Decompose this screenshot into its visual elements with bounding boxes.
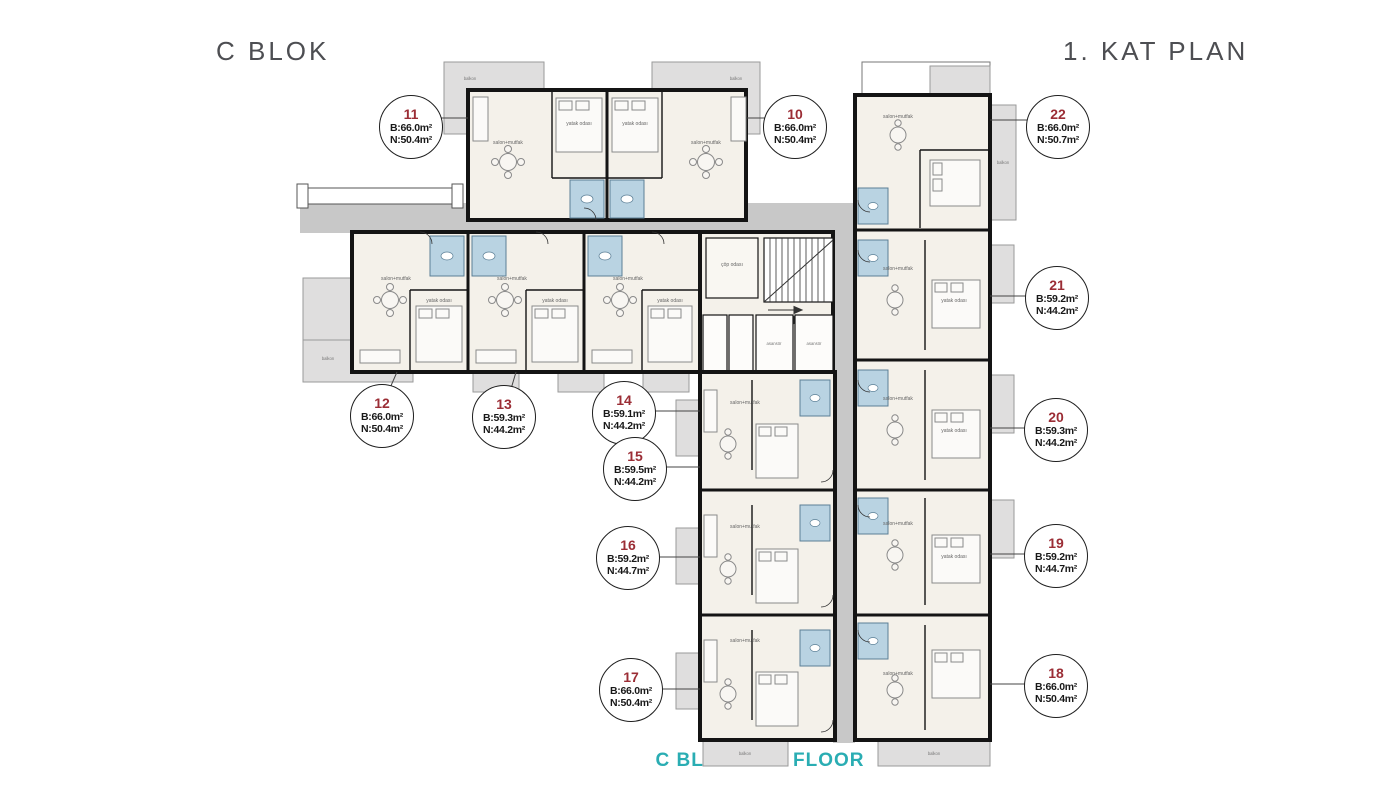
unit-badge-21: 21 B:59.2m² N:44.2m² — [1025, 266, 1089, 330]
room-label-balcony: balkon — [730, 76, 743, 81]
unit-number: 19 — [1048, 536, 1064, 552]
floor-plan-page: C BLOK 1. KAT PLAN C BLOCK - 1. FLOOR — [0, 0, 1400, 788]
room-label-bedroom: yatak odası — [941, 554, 967, 560]
unit-net-area: N:44.2m² — [603, 421, 645, 433]
unit-badge-19: 19 B:59.2m² N:44.7m² — [1024, 524, 1088, 588]
unit-net-area: N:44.2m² — [614, 477, 656, 489]
room-label-salon: salon+mutfak — [691, 140, 721, 146]
left-column-units — [700, 372, 835, 740]
unit-badge-22: 22 B:66.0m² N:50.7m² — [1026, 95, 1090, 159]
unit-number: 13 — [496, 397, 512, 413]
unit-badge-10: 10 B:66.0m² N:50.4m² — [763, 95, 827, 159]
unit-number: 10 — [787, 107, 803, 123]
unit-net-area: N:44.2m² — [1035, 438, 1077, 450]
room-label-salon: salon+mutfak — [883, 521, 913, 527]
unit-net-area: N:50.7m² — [1037, 135, 1079, 147]
room-label-trash: çöp odası — [721, 262, 743, 268]
room-label-bedroom: yatak odası — [941, 428, 967, 434]
unit-number: 15 — [627, 449, 643, 465]
room-label-salon: salon+mutfak — [730, 638, 760, 644]
unit-net-area: N:44.2m² — [483, 425, 525, 437]
room-label-bedroom: yatak odası — [622, 121, 648, 127]
unit-number: 12 — [374, 396, 390, 412]
room-label-salon: salon+mutfak — [883, 266, 913, 272]
unit-net-area: N:44.7m² — [1035, 564, 1077, 576]
unit-number: 18 — [1048, 666, 1064, 682]
unit-net-area: N:50.4m² — [390, 135, 432, 147]
room-label-bedroom: yatak odası — [566, 121, 592, 127]
unit-net-area: N:50.4m² — [774, 135, 816, 147]
unit-badge-13: 13 B:59.3m² N:44.2m² — [472, 385, 536, 449]
unit-badge-15: 15 B:59.5m² N:44.2m² — [603, 437, 667, 501]
room-label-salon: salon+mutfak — [493, 140, 523, 146]
middle-wing — [352, 232, 700, 372]
room-label-balcony: balkon — [322, 356, 335, 361]
unit-badge-18: 18 B:66.0m² N:50.4m² — [1024, 654, 1088, 718]
room-label-salon: salon+mutfak — [883, 396, 913, 402]
room-label-salon: salon+mutfak — [883, 114, 913, 120]
unit-number: 21 — [1049, 278, 1065, 294]
unit-net-area: N:50.4m² — [610, 698, 652, 710]
room-label-bedroom: yatak odası — [542, 298, 568, 304]
unit-badge-14: 14 B:59.1m² N:44.2m² — [592, 381, 656, 445]
unit-net-area: N:50.4m² — [361, 424, 403, 436]
top-wing — [468, 90, 746, 220]
unit-badge-12: 12 B:66.0m² N:50.4m² — [350, 384, 414, 448]
room-label-salon: salon+mutfak — [613, 276, 643, 282]
floor-plan-svg: salon+mutfak salon+mutfak salon+mutfak s… — [0, 0, 1400, 788]
unit-badge-16: 16 B:59.2m² N:44.7m² — [596, 526, 660, 590]
room-label-bedroom: yatak odası — [657, 298, 683, 304]
room-label-balcony: balkon — [928, 751, 941, 756]
room-label-salon: salon+mutfak — [883, 671, 913, 677]
unit-badge-11: 11 B:66.0m² N:50.4m² — [379, 95, 443, 159]
room-label-balcony: balkon — [739, 751, 752, 756]
room-label-salon: salon+mutfak — [381, 276, 411, 282]
unit-badge-20: 20 B:59.3m² N:44.2m² — [1024, 398, 1088, 462]
unit-net-area: N:44.2m² — [1036, 306, 1078, 318]
room-label-salon: salon+mutfak — [730, 400, 760, 406]
room-label-balcony: balkon — [997, 160, 1010, 165]
room-label-bedroom: yatak odası — [941, 298, 967, 304]
unit-number: 16 — [620, 538, 636, 554]
unit-number: 14 — [616, 393, 632, 409]
unit-net-area: N:44.7m² — [607, 566, 649, 578]
room-label-salon: salon+mutfak — [497, 276, 527, 282]
unit-number: 11 — [404, 107, 419, 123]
right-column-units — [855, 95, 990, 740]
unit-badge-17: 17 B:66.0m² N:50.4m² — [599, 658, 663, 722]
unit-net-area: N:50.4m² — [1035, 694, 1077, 706]
room-label-balcony: balkon — [464, 76, 477, 81]
room-label-elevator: asansör — [767, 341, 783, 346]
room-label-elevator: asansör — [807, 341, 823, 346]
room-label-bedroom: yatak odası — [426, 298, 452, 304]
room-label-salon: salon+mutfak — [730, 524, 760, 530]
core-stairwell — [700, 232, 833, 372]
unit-number: 17 — [623, 670, 639, 686]
unit-number: 20 — [1048, 410, 1064, 426]
unit-number: 22 — [1050, 107, 1066, 123]
